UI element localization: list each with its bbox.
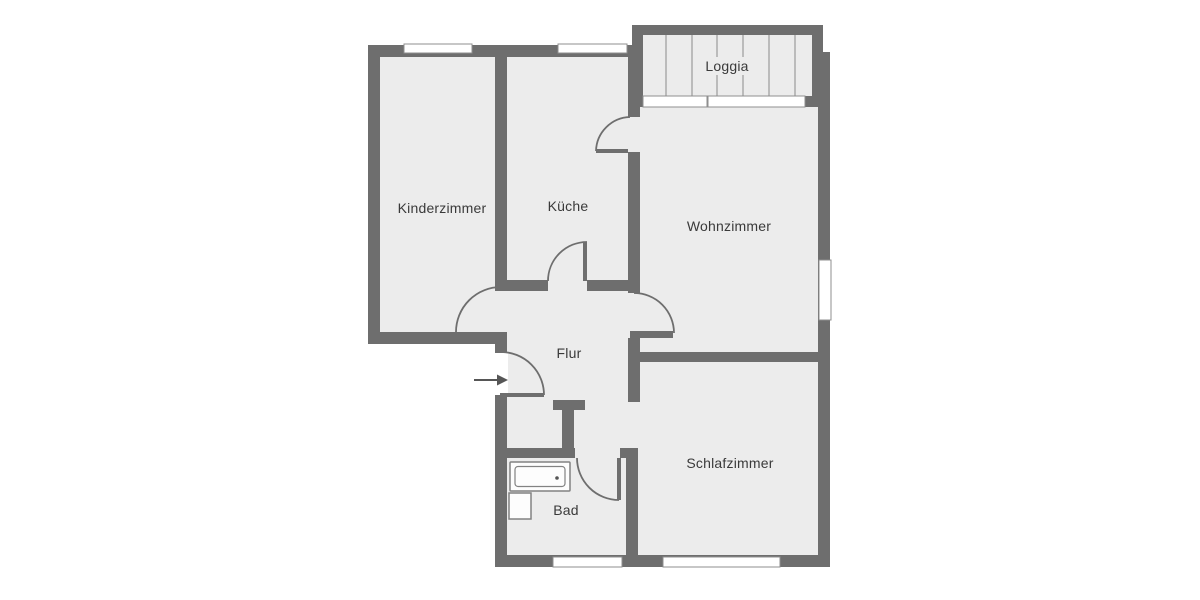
window-kueche: [558, 44, 627, 53]
wall-loggia-step: [812, 52, 830, 98]
entrance-opening: [494, 353, 508, 395]
bathtub-icon: [510, 462, 570, 491]
door-leaf-bad: [617, 458, 621, 500]
room-label-wohnzimmer: Wohnzimmer: [687, 218, 771, 234]
window-bad-bottom: [553, 557, 622, 567]
wall-bad-schlafzimmer: [626, 448, 638, 555]
room-label-kinderzimmer: Kinderzimmer: [398, 200, 487, 216]
wall-flur-schlafzimmer-upper: [628, 338, 640, 402]
wall-kueche-wohnzimmer-lower: [628, 152, 640, 293]
wall-wohnzimmer-schlafzimmer: [638, 352, 818, 362]
floor-plan-drawing: [0, 0, 1200, 600]
wall-left-lower-b: [495, 395, 507, 567]
window-kinderzimmer: [404, 44, 472, 53]
door-leaf-kueche-flur: [583, 242, 587, 281]
window-schlafzimmer-bottom: [663, 557, 780, 567]
window-loggia-right: [708, 96, 805, 107]
window-loggia-left: [643, 96, 707, 107]
wall-kueche-bottom-left: [495, 280, 548, 291]
room-label-kueche: Küche: [548, 198, 589, 214]
door-leaf-entrance: [500, 393, 544, 397]
window-wohnzimmer-right: [819, 260, 831, 320]
room-label-loggia: Loggia: [700, 57, 753, 75]
wall-loggia-top: [632, 25, 823, 35]
wall-left-upper: [368, 45, 380, 344]
wall-kinderzimmer-kueche: [495, 57, 507, 283]
wall-loggia-sill-right: [805, 96, 823, 107]
wall-kueche-wohnzimmer-upper: [628, 45, 640, 117]
door-leaf-kueche-wohnzimmer: [596, 149, 628, 153]
wall-flur-stub-stem: [562, 410, 574, 448]
washbasin-icon: [509, 493, 531, 519]
room-label-flur: Flur: [557, 345, 582, 361]
wall-bad-corner: [620, 448, 638, 458]
wall-kinderzimmer-bottom: [368, 332, 507, 344]
floor-plan: Kinderzimmer Küche Wohnzimmer Loggia Flu…: [0, 0, 1200, 600]
room-label-schlafzimmer: Schlafzimmer: [686, 455, 773, 471]
room-label-bad: Bad: [553, 502, 579, 518]
wall-bad-top: [507, 448, 575, 458]
door-leaf-flur-wohnzimmer: [630, 331, 673, 338]
wall-flur-stub-cap: [553, 400, 585, 410]
